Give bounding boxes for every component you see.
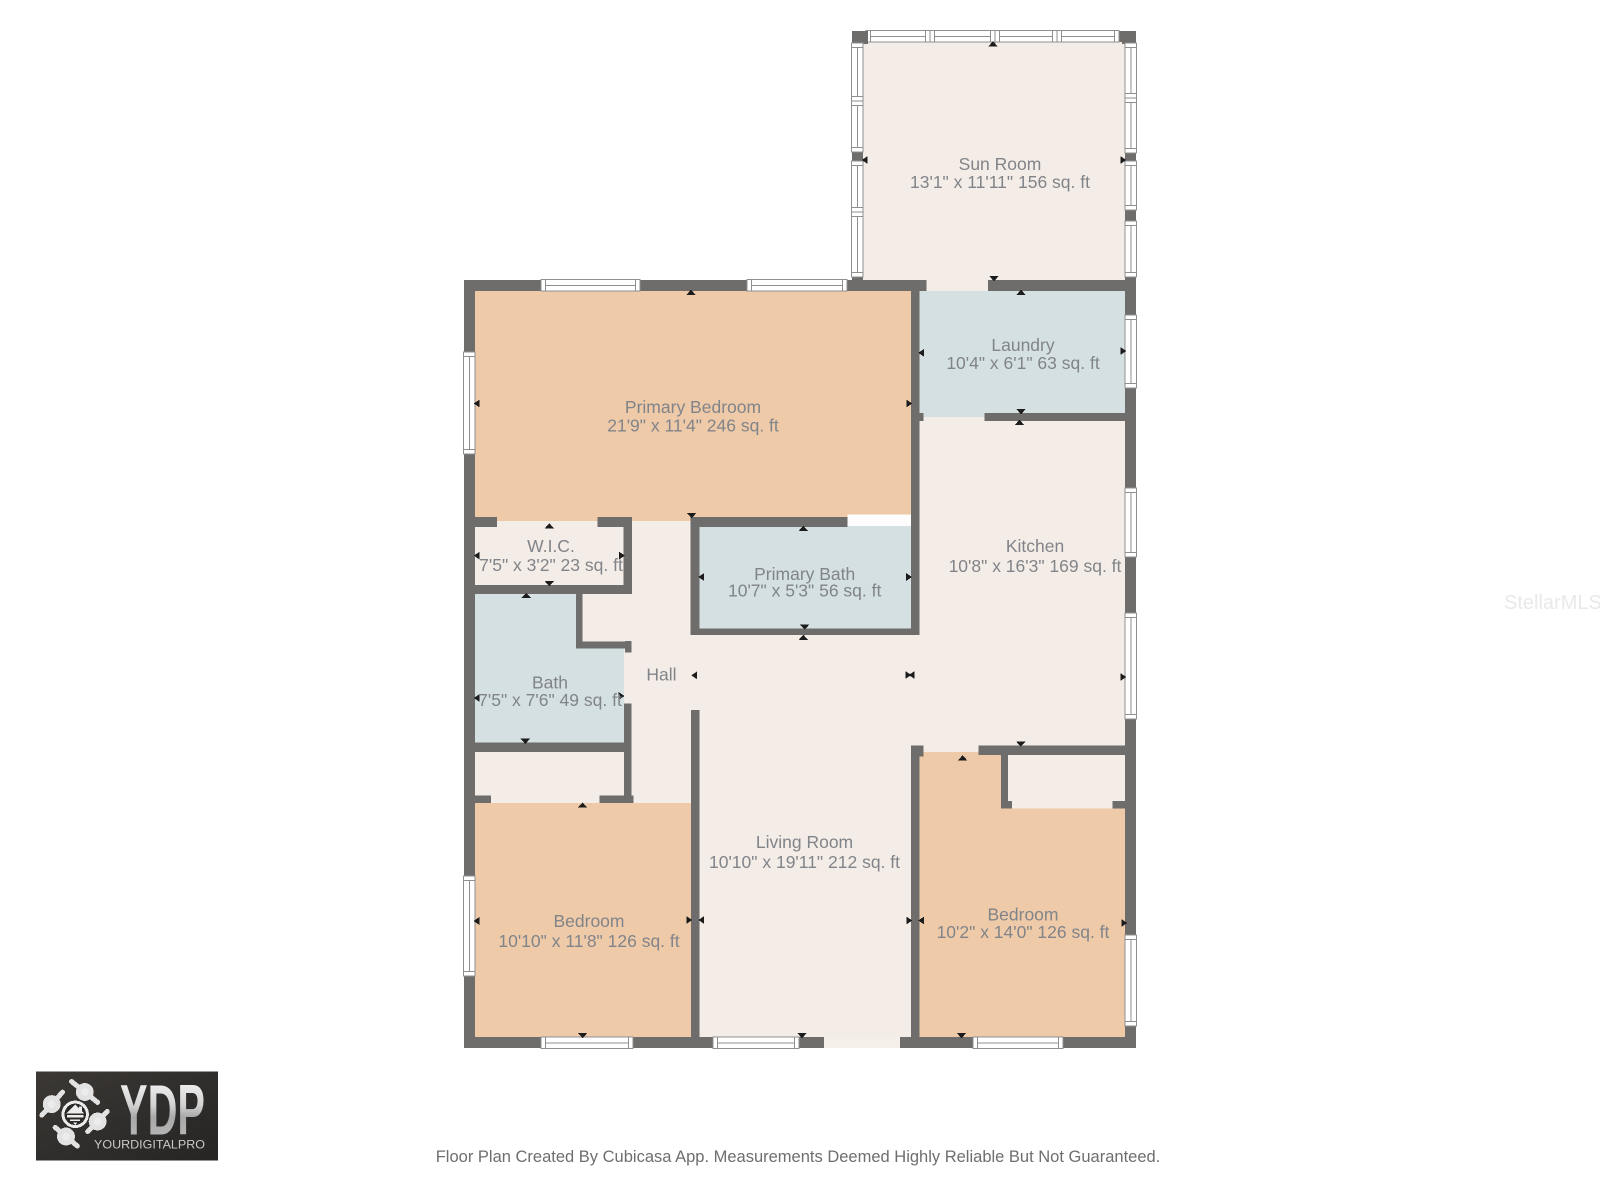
svg-text:10'8" x 16'3" 169 sq. ft: 10'8" x 16'3" 169 sq. ft (949, 556, 1122, 576)
svg-text:7'5" x 3'2" 23 sq. ft: 7'5" x 3'2" 23 sq. ft (479, 555, 623, 575)
svg-text:10'2" x 14'0" 126 sq. ft: 10'2" x 14'0" 126 sq. ft (937, 922, 1110, 942)
svg-text:Hall: Hall (646, 665, 676, 685)
svg-text:Kitchen: Kitchen (1006, 536, 1064, 556)
svg-text:10'4" x 6'1" 63 sq. ft: 10'4" x 6'1" 63 sq. ft (946, 353, 1100, 373)
svg-text:10'10" x 11'8" 126 sq. ft: 10'10" x 11'8" 126 sq. ft (498, 931, 679, 951)
svg-text:7'5" x 7'6" 49 sq. ft: 7'5" x 7'6" 49 sq. ft (478, 690, 622, 710)
svg-text:YOURDIGITALPRO: YOURDIGITALPRO (94, 1138, 205, 1152)
svg-text:W.I.C.: W.I.C. (527, 536, 575, 556)
svg-text:10'10" x 19'11" 212 sq. ft: 10'10" x 19'11" 212 sq. ft (709, 852, 900, 872)
svg-text:Bedroom: Bedroom (553, 911, 624, 931)
svg-text:Primary Bedroom: Primary Bedroom (625, 397, 761, 417)
svg-text:10'7" x 5'3" 56 sq. ft: 10'7" x 5'3" 56 sq. ft (728, 581, 882, 601)
svg-text:Floor Plan Created By Cubicasa: Floor Plan Created By Cubicasa App. Meas… (436, 1148, 1161, 1166)
svg-text:Sun Room: Sun Room (959, 154, 1042, 174)
svg-text:13'1" x 11'11" 156 sq. ft: 13'1" x 11'11" 156 sq. ft (910, 172, 1090, 192)
svg-text:Living Room: Living Room (756, 832, 853, 852)
svg-text:StellarMLS: StellarMLS (1504, 592, 1600, 614)
svg-text:21'9" x 11'4" 246 sq. ft: 21'9" x 11'4" 246 sq. ft (607, 416, 779, 436)
svg-text:Laundry: Laundry (991, 335, 1054, 355)
